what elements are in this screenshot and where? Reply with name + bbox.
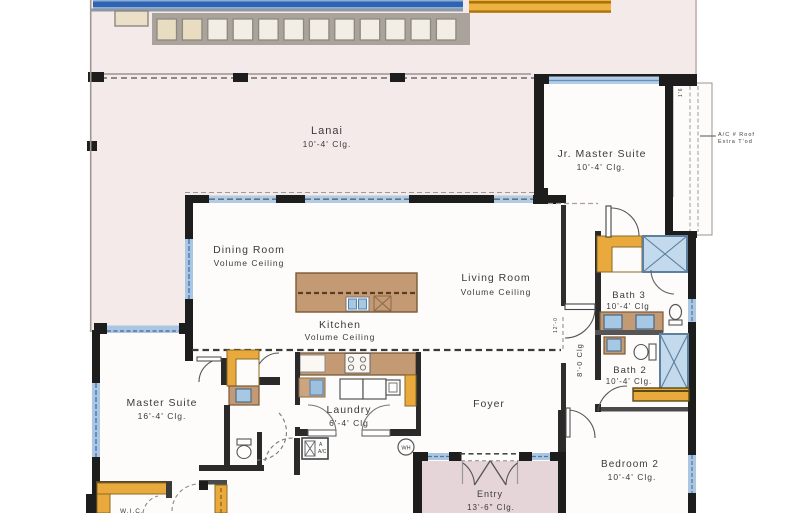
svg-text:Foyer: Foyer bbox=[473, 398, 505, 410]
svg-text:8'-0 Clg: 8'-0 Clg bbox=[575, 343, 584, 377]
svg-text:Bedroom 2: Bedroom 2 bbox=[601, 459, 659, 470]
svg-text:10'-4' Clg: 10'-4' Clg bbox=[606, 302, 649, 311]
svg-text:Dining Room: Dining Room bbox=[213, 244, 285, 256]
svg-text:Entry: Entry bbox=[477, 489, 503, 499]
svg-text:Volume Ceiling: Volume Ceiling bbox=[305, 332, 376, 342]
svg-text:10'-4' Clg.: 10'-4' Clg. bbox=[577, 162, 626, 172]
svg-text:W.I.C.: W.I.C. bbox=[120, 508, 144, 513]
svg-text:A/C # Roof: A/C # Roof bbox=[718, 132, 755, 138]
svg-text:Volume Ceiling: Volume Ceiling bbox=[461, 287, 532, 297]
svg-text:10'-4' Clg.: 10'-4' Clg. bbox=[303, 139, 352, 149]
svg-text:1'6: 1'6 bbox=[678, 87, 684, 97]
svg-text:A/C: A/C bbox=[318, 449, 327, 455]
svg-text:12'-0: 12'-0 bbox=[553, 317, 559, 333]
svg-text:Volume Ceiling: Volume Ceiling bbox=[214, 258, 285, 268]
svg-text:Laundry: Laundry bbox=[327, 404, 372, 416]
svg-text:Bath 2: Bath 2 bbox=[613, 365, 646, 376]
svg-text:Jr. Master Suite: Jr. Master Suite bbox=[558, 148, 647, 160]
svg-text:10'-4' Clg.: 10'-4' Clg. bbox=[606, 377, 653, 386]
svg-text:16'-4' Clg.: 16'-4' Clg. bbox=[138, 411, 187, 421]
svg-text:6'-4' Clg: 6'-4' Clg bbox=[329, 418, 369, 428]
svg-text:Extra T'od: Extra T'od bbox=[718, 139, 753, 145]
svg-text:Living Room: Living Room bbox=[461, 272, 530, 284]
svg-text:13'-6" Clg.: 13'-6" Clg. bbox=[467, 503, 515, 512]
svg-text:Kitchen: Kitchen bbox=[319, 319, 361, 331]
svg-text:Bath 3: Bath 3 bbox=[612, 290, 645, 301]
svg-text:10'-4' Clg.: 10'-4' Clg. bbox=[608, 472, 657, 482]
svg-text:Master Suite: Master Suite bbox=[127, 397, 198, 409]
svg-text:WH: WH bbox=[401, 446, 410, 452]
svg-text:Lanai: Lanai bbox=[311, 125, 343, 137]
